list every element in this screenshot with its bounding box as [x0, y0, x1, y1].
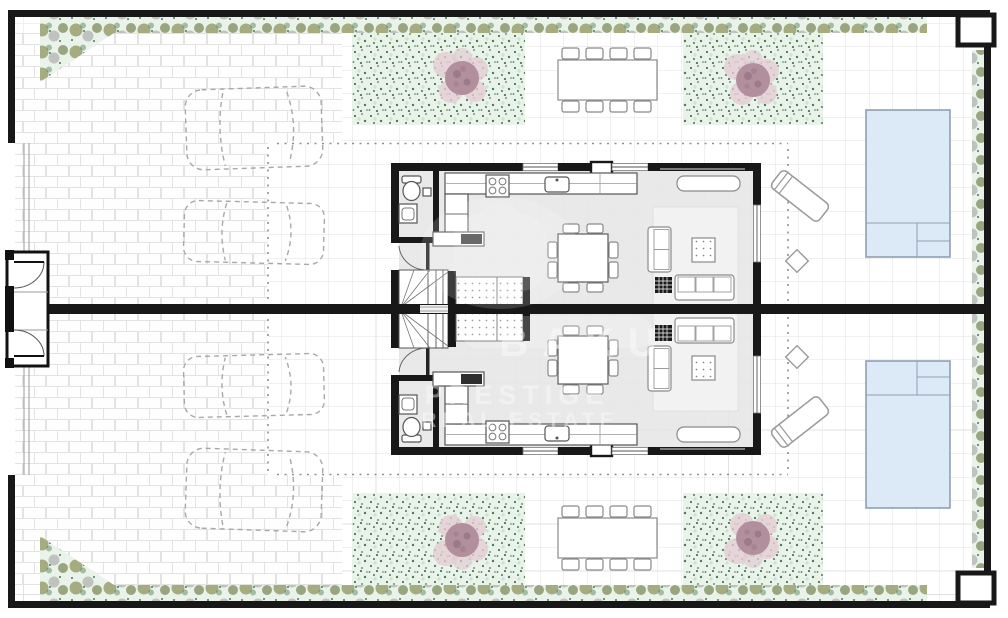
toilet — [403, 182, 420, 201]
outdoor-table — [558, 60, 657, 100]
stairwell-gap — [420, 305, 448, 313]
floor-plan-canvas: BAKU PRESTIGE REAL ESTATE — [0, 0, 1008, 618]
bath-niche — [423, 188, 431, 196]
watermark-line-3: REAL ESTATE — [421, 409, 618, 432]
sofa-vertical — [648, 227, 671, 272]
watermark-line-1: BAKU — [499, 321, 671, 365]
brick-driveway — [15, 143, 268, 309]
site-wall-left — [8, 10, 15, 143]
garden-bed-center — [352, 33, 525, 125]
floor-plan-page: BAKU PRESTIGE REAL ESTATE — [0, 0, 1008, 618]
swimming-pool — [866, 110, 950, 257]
floor-grille — [655, 277, 672, 293]
site-wall-right — [984, 44, 991, 309]
entrance-gates — [5, 250, 48, 368]
sofa-horizontal — [675, 275, 734, 300]
cooktop — [486, 175, 509, 197]
corner-structure — [958, 15, 994, 45]
site-wall-top — [8, 10, 990, 17]
tv-console — [677, 176, 740, 191]
watermark-flower-logo — [453, 203, 547, 303]
watermark-line-2: PRESTIGE — [425, 380, 610, 410]
